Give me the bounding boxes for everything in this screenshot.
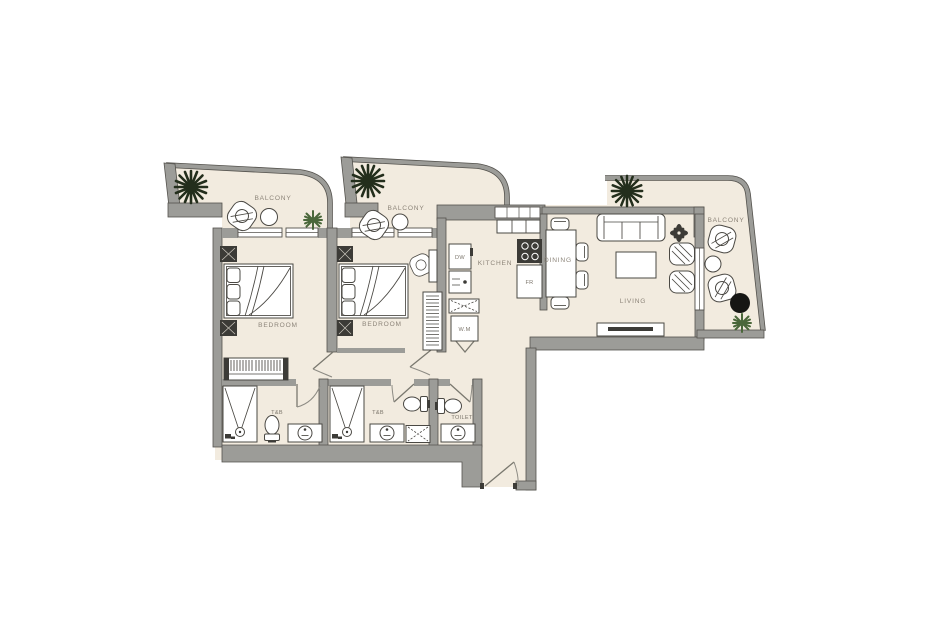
- dining-chair: [551, 218, 569, 230]
- round-table: [261, 209, 278, 226]
- bedroom-divider-wall: [327, 228, 337, 352]
- round-table: [392, 214, 408, 230]
- wardrobe: [224, 358, 288, 380]
- stove: [517, 239, 542, 263]
- armchair: [670, 243, 695, 265]
- sink: [441, 424, 475, 442]
- bedroom-left-furniture: [220, 246, 293, 380]
- fridge-label: FR: [525, 280, 533, 286]
- laundry-shelf: [449, 299, 479, 313]
- kitchen-sink: [449, 271, 471, 293]
- kitchen-label: KITCHEN: [478, 260, 513, 267]
- shower: [330, 386, 364, 442]
- fire-pit: [730, 293, 750, 313]
- dining-chair: [576, 243, 588, 261]
- hall-right-wall: [526, 348, 536, 490]
- toilet-bowl: [404, 397, 431, 412]
- armchair: [670, 271, 695, 293]
- kitchen-window: [495, 207, 540, 218]
- dining-chair: [576, 271, 588, 289]
- floor-plan-canvas: BALCONY BALCONY BALCONY BEDROOM BEDROOM …: [0, 0, 934, 640]
- bed: [339, 264, 408, 318]
- dishwasher-label: DW: [455, 255, 465, 261]
- dressing-table: [429, 250, 437, 282]
- bottom-exterior-wall: [222, 445, 482, 487]
- bedroom-left-label: BEDROOM: [258, 322, 298, 329]
- bush-icon: [733, 314, 751, 332]
- washing-machine-label: W.M: [458, 327, 470, 333]
- apartment-floor-plan: BALCONY BALCONY BALCONY BEDROOM BEDROOM …: [0, 0, 934, 640]
- balcony-right-label: BALCONY: [707, 217, 744, 224]
- round-table: [705, 256, 721, 272]
- balcony-left-label: BALCONY: [254, 195, 291, 202]
- sink: [288, 424, 322, 442]
- sink: [370, 424, 404, 442]
- bed: [224, 264, 293, 318]
- coffee-table: [616, 252, 656, 278]
- toilet-bowl: [265, 416, 280, 443]
- bush-icon: [304, 211, 322, 229]
- open-wardrobe: [423, 292, 442, 350]
- toilet-label: TOILET: [451, 415, 473, 421]
- tv-console: [597, 323, 664, 336]
- sofa: [597, 214, 665, 241]
- bath-left-label: T&B: [271, 410, 283, 416]
- tree-icon: [612, 176, 642, 206]
- tree-icon: [352, 165, 384, 197]
- tree-icon: [175, 171, 207, 203]
- shaft-box: [406, 426, 430, 443]
- bath-middle-label: T&B: [372, 410, 384, 416]
- balcony-middle-label: BALCONY: [387, 205, 424, 212]
- bedroom-middle-label: BEDROOM: [362, 321, 402, 328]
- toilet-bowl: [435, 399, 462, 414]
- counter-top: [497, 220, 540, 233]
- dining-label: DINING: [544, 257, 572, 264]
- dining-chair: [551, 297, 569, 309]
- shower: [223, 386, 257, 442]
- living-label: LIVING: [620, 298, 646, 305]
